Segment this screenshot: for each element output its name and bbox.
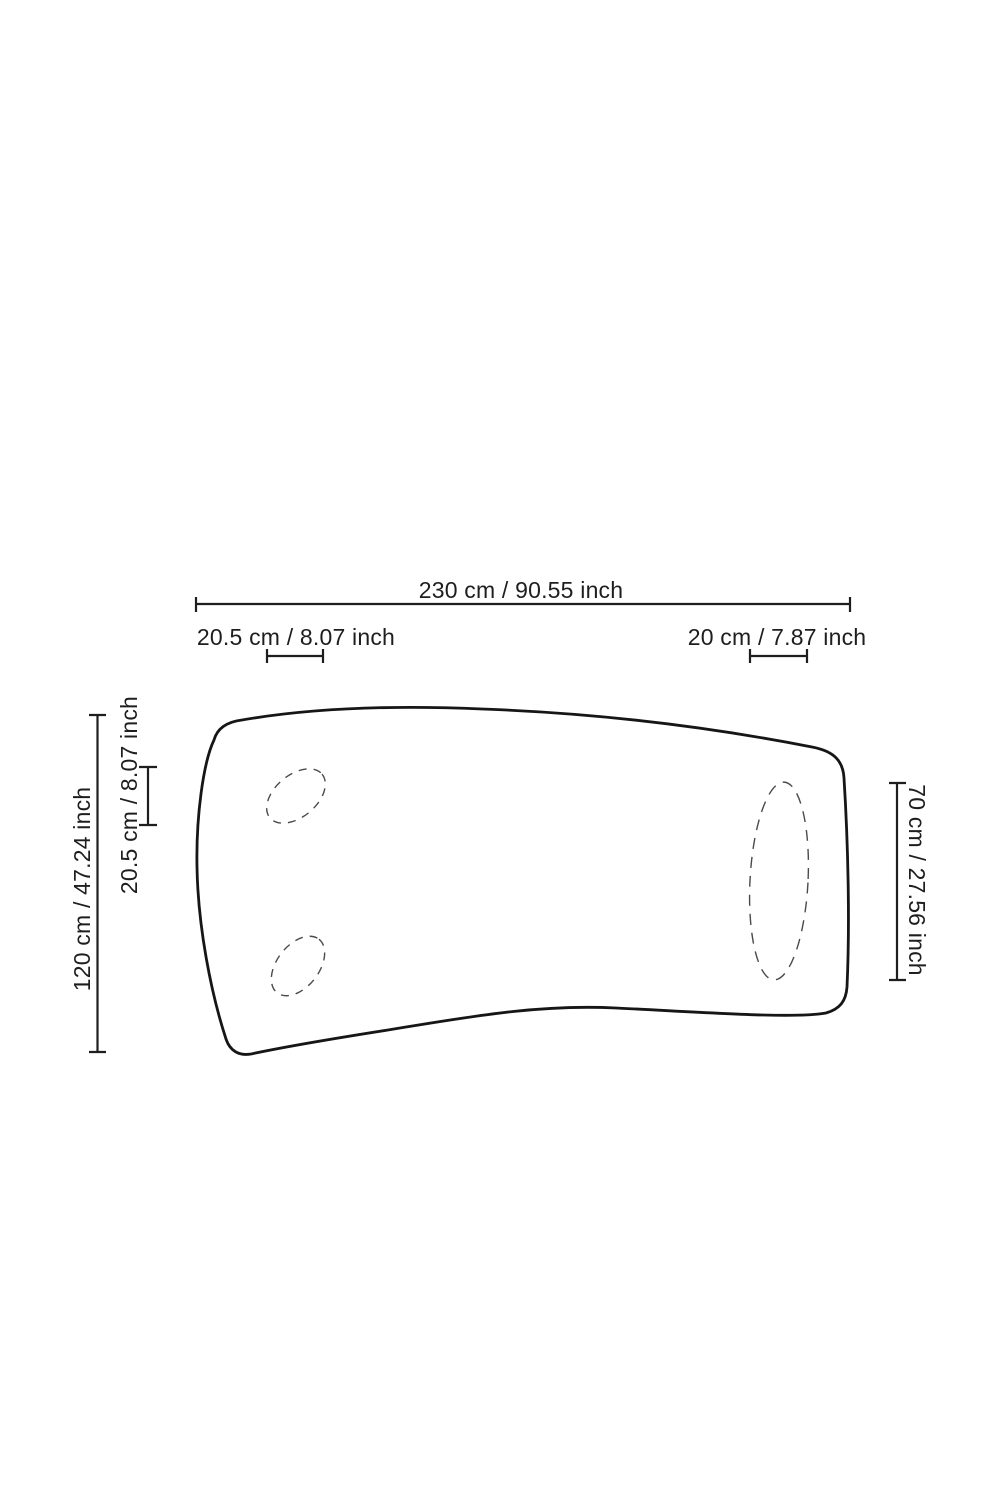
dimension-diagram: 230 cm / 90.55 inch 20.5 cm / 8.07 inch … bbox=[0, 0, 1000, 1500]
dimension-label-right-leg-depth: 70 cm / 27.56 inch bbox=[904, 784, 930, 976]
dimension-label-total-width: 230 cm / 90.55 inch bbox=[419, 577, 624, 603]
dimension-label-left-leg-width: 20.5 cm / 8.07 inch bbox=[197, 624, 395, 650]
dimension-line-right-leg-depth bbox=[889, 783, 906, 980]
leg-outline-bottom-left bbox=[261, 926, 336, 1005]
dimension-label-total-depth: 120 cm / 47.24 inch bbox=[69, 787, 95, 992]
tabletop-outline bbox=[197, 707, 849, 1054]
dimension-drawing-page: 230 cm / 90.55 inch 20.5 cm / 8.07 inch … bbox=[0, 0, 1000, 1500]
dimension-label-left-leg-depth: 20.5 cm / 8.07 inch bbox=[116, 696, 142, 894]
dimension-label-right-leg-width: 20 cm / 7.87 inch bbox=[688, 624, 867, 650]
leg-outline-top-left bbox=[256, 758, 335, 834]
dimension-line-left-leg-width bbox=[267, 649, 323, 663]
dimension-line-right-leg-width bbox=[750, 649, 807, 663]
leg-outline-right bbox=[745, 781, 813, 982]
